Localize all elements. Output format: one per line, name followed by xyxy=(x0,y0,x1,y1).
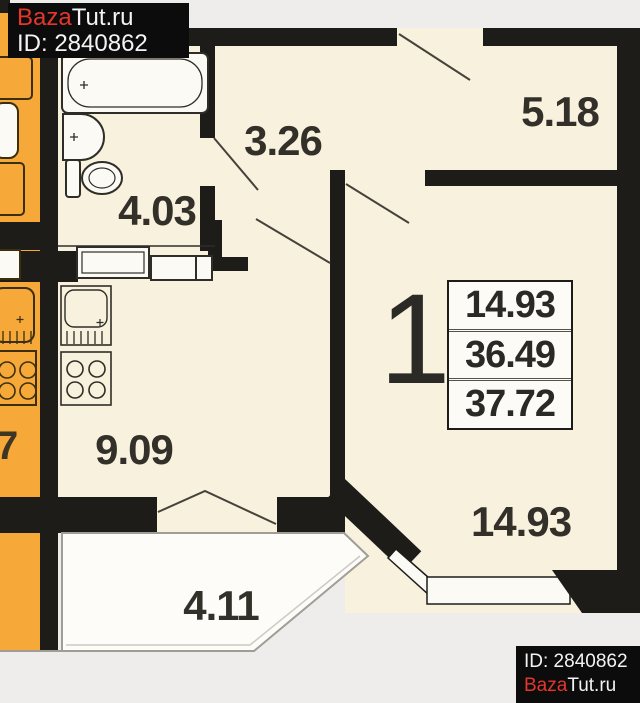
watermark-top-left: BazaTut.ru ID: 2840862 xyxy=(8,3,189,58)
wall-left-divider xyxy=(40,12,58,652)
watermark-brand-red: Baza xyxy=(17,4,72,31)
total-area-value: 37.72 xyxy=(449,378,571,428)
usable-area-value: 36.49 xyxy=(449,329,571,379)
wall-bottom-left xyxy=(0,497,157,533)
watermark-bottom-right: ID: 2840862 BazaTut.ru xyxy=(516,646,640,703)
wall-bottom-mid xyxy=(277,497,345,533)
floor-plan-image: 3.26 5.18 4.03 9.09 4.11 14.93 1 14.93 3… xyxy=(0,0,640,703)
room-label-hallway: 3.26 xyxy=(244,117,322,165)
room-label-kitchen: 9.09 xyxy=(95,426,173,474)
wall-bathroom-right-upper xyxy=(200,45,215,138)
watermark-brand: BazaTut.ru xyxy=(17,5,180,31)
area-info-box: 14.93 36.49 37.72 xyxy=(447,280,573,430)
apartment-number: 1 xyxy=(379,276,450,404)
wall-living-left xyxy=(330,170,345,495)
room-label-entry: 5.18 xyxy=(521,88,599,136)
wall-kitchen-counter-bar xyxy=(0,251,78,282)
wall-adjacent-cross-upper xyxy=(0,222,43,250)
adjacent-apartment-strip xyxy=(0,12,40,652)
living-area-value: 14.93 xyxy=(449,282,571,329)
room-label-balcony: 4.11 xyxy=(183,582,258,630)
watermark-brand-rest: Tut.ru xyxy=(72,4,134,31)
wall-living-top xyxy=(425,170,617,186)
watermark-id: ID: 2840862 xyxy=(17,31,180,57)
watermark-brand-red: Baza xyxy=(524,675,567,696)
watermark-id: ID: 2840862 xyxy=(524,650,632,674)
wall-hall-corner-stub xyxy=(208,257,248,271)
adjacent-apartment-number: 7 xyxy=(0,424,18,469)
room-label-bathroom: 4.03 xyxy=(118,187,196,235)
watermark-brand-rest: Tut.ru xyxy=(567,675,616,696)
watermark-brand: BazaTut.ru xyxy=(524,674,632,698)
wall-right xyxy=(617,28,640,613)
room-label-living-room: 14.93 xyxy=(471,498,571,546)
